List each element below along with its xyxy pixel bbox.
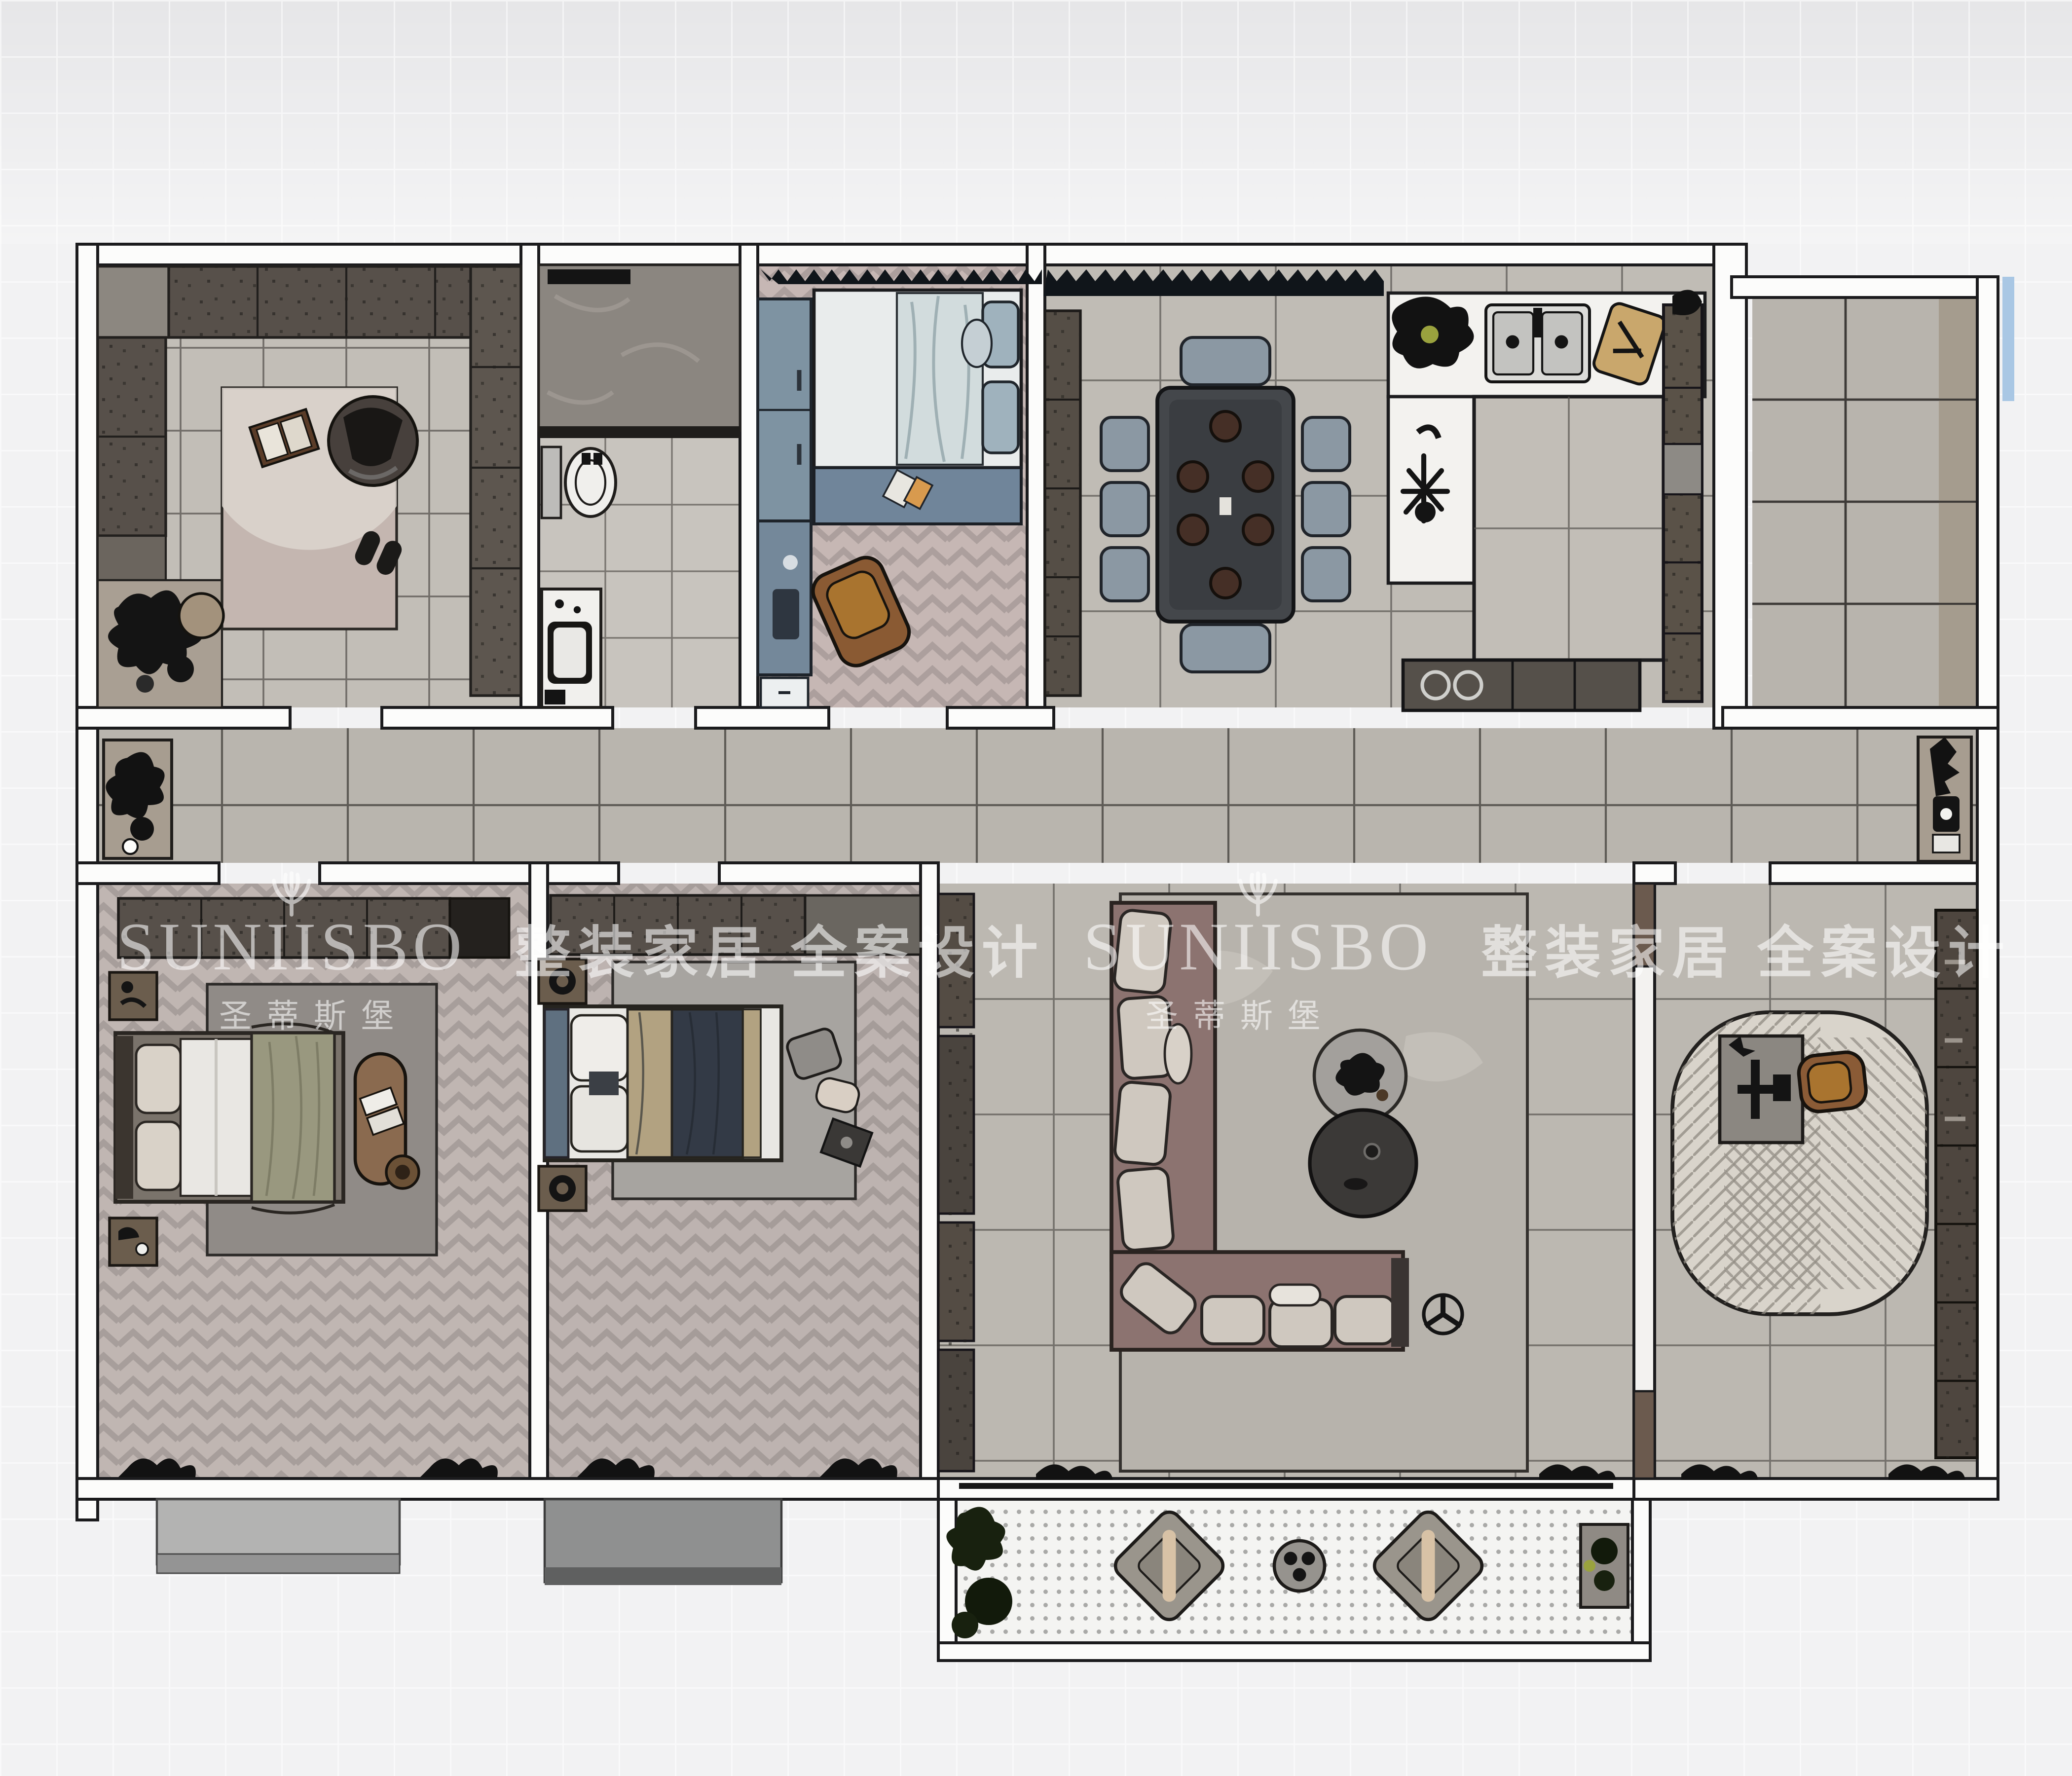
coffee-table-light	[1314, 1030, 1406, 1122]
wardrobe-left	[98, 337, 166, 580]
blanket-navy	[672, 1009, 743, 1157]
watermark-brand-cn: 圣蒂斯堡	[1146, 999, 1335, 1035]
wall-kids-dining	[1027, 244, 1045, 728]
watermark-brand: SUNIISBO	[1083, 909, 1433, 984]
balcony-plant-stand-right	[1581, 1524, 1628, 1607]
shower-area	[539, 265, 740, 438]
kids-desk	[814, 467, 1021, 524]
entry-console	[1918, 737, 1971, 861]
headboard	[115, 1036, 133, 1199]
accent-blue-strip	[2002, 277, 2014, 401]
bolster	[962, 320, 992, 367]
balcony-table	[1274, 1541, 1325, 1591]
bookshelf	[1936, 910, 1977, 1458]
wall-balcony-left	[938, 1499, 956, 1661]
toilet	[542, 447, 616, 518]
wardrobe-right	[471, 266, 521, 696]
phone	[589, 1072, 619, 1095]
shower-glass	[539, 426, 740, 438]
wall-dining-utility	[1714, 244, 1746, 728]
kitchen-island-counter	[1403, 660, 1640, 710]
nightstand	[539, 1166, 586, 1211]
study-desk	[1720, 1036, 1803, 1143]
vanity-sink	[542, 589, 601, 707]
floorplan-rendering: SUNIISBO 圣蒂斯堡 整装家居 全案设计 SUNIISBO 圣蒂斯堡 整装…	[0, 0, 2072, 1776]
tall-cabinets-right	[1664, 305, 1702, 702]
blanket-tan	[628, 1009, 672, 1157]
kids-wardrobe	[758, 299, 811, 707]
pillow	[136, 1045, 181, 1113]
utility-room-floor	[1752, 297, 1977, 707]
wall-right	[1977, 277, 1998, 1499]
wall-bottom-left	[77, 1479, 938, 1499]
pillow	[136, 1122, 181, 1190]
sofa-pillow	[1270, 1285, 1320, 1305]
wall-balcony-right	[1632, 1499, 1650, 1661]
watermark-slogan: 整装家居 全案设计	[1481, 922, 2012, 985]
wall-utility-top	[1732, 277, 1998, 297]
wall-balcony-bottom	[938, 1643, 1650, 1661]
hallway-floor	[98, 728, 1977, 863]
ottoman	[179, 593, 223, 638]
dining-table	[1157, 388, 1294, 622]
double-sink	[1486, 305, 1590, 382]
wardrobe-top	[169, 266, 503, 337]
watermark-brand: SUNIISBO	[117, 909, 466, 984]
wall-bath-kids	[740, 244, 758, 728]
cabinet-panel	[98, 266, 169, 337]
blanket	[252, 1033, 334, 1202]
hallway-plant-stand	[104, 740, 172, 858]
wall-top	[77, 244, 1714, 265]
pillow	[571, 1086, 628, 1151]
coffee-table-dark	[1310, 1110, 1416, 1217]
pantry-cabinets-left	[1045, 311, 1080, 696]
lounge-chair	[329, 397, 417, 485]
nightstand	[110, 1218, 157, 1265]
master-bed	[115, 1024, 343, 1213]
sofa-armrest	[1391, 1258, 1409, 1347]
headboard	[545, 1009, 568, 1157]
wall-bottom-right	[1634, 1479, 1998, 1499]
bed2	[545, 1006, 781, 1160]
study-chair	[1797, 1050, 1868, 1113]
pillow	[571, 1015, 628, 1080]
watermark-slogan: 整装家居 全案设计	[515, 922, 1045, 985]
kids-bed	[814, 290, 1021, 468]
shower-head	[548, 269, 630, 284]
wall-cloak-bath	[521, 244, 539, 728]
pillow	[983, 382, 1018, 453]
floorplan-svg: SUNIISBO 圣蒂斯堡 整装家居 全案设计 SUNIISBO 圣蒂斯堡 整装…	[0, 0, 2072, 1776]
watermark-brand-cn: 圣蒂斯堡	[219, 999, 408, 1035]
